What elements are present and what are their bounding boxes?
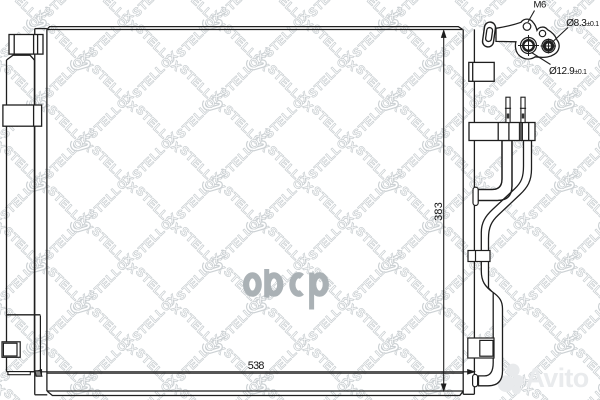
- svg-text:383: 383: [433, 202, 445, 221]
- svg-text:538: 538: [248, 360, 265, 372]
- svg-text:Avito: Avito: [526, 363, 589, 393]
- svg-text:Ø8.3±0.1: Ø8.3±0.1: [566, 18, 599, 29]
- svg-text:M6: M6: [534, 0, 547, 10]
- svg-text:Ø12.9±0.1: Ø12.9±0.1: [549, 66, 587, 77]
